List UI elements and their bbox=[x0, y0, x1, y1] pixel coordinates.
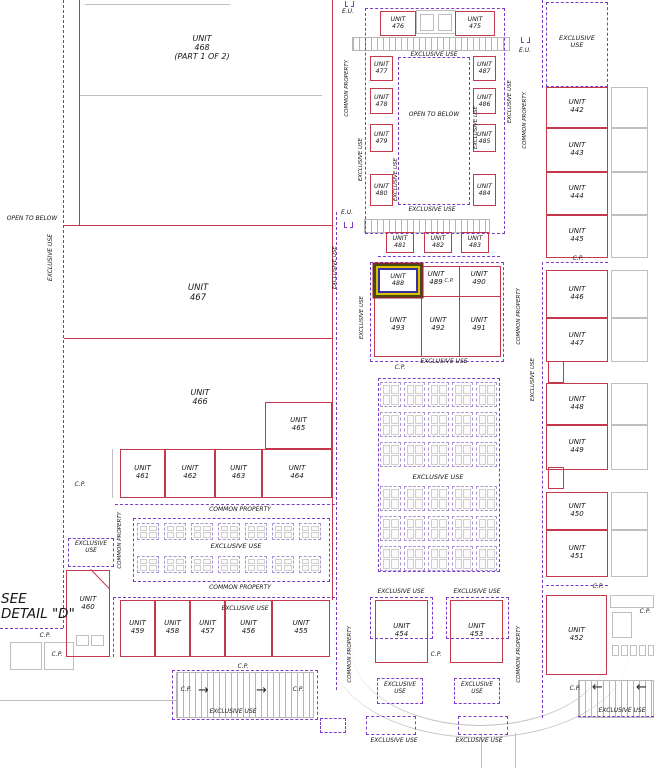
unit-466-label: UNIT 466 bbox=[190, 388, 209, 406]
unit-492-label: UNIT 492 bbox=[430, 317, 447, 333]
wall-segment bbox=[332, 0, 333, 600]
unit-477-label: UNIT 477 bbox=[374, 61, 389, 75]
table-group bbox=[404, 546, 425, 571]
unit-444-label: UNIT 444 bbox=[569, 185, 586, 201]
boundary-rect bbox=[320, 718, 346, 733]
table-group bbox=[164, 556, 186, 573]
table-group bbox=[452, 516, 473, 541]
balcony-or-fixture-outline bbox=[611, 215, 648, 258]
boundary-line bbox=[113, 597, 335, 598]
eu-bracket-icon bbox=[345, 1, 354, 7]
unit-455-label: UNIT 455 bbox=[293, 620, 310, 636]
annotation-label: EXCLUSIVE USE bbox=[377, 589, 424, 596]
annotation-label: EXCLUSIVE USE bbox=[453, 589, 500, 596]
unit-443-label: UNIT 443 bbox=[569, 142, 586, 158]
unit-482-label: UNIT 482 bbox=[430, 235, 445, 249]
table-group bbox=[428, 516, 449, 541]
annotation-label-rotated: EXCLUSIVE USE bbox=[48, 234, 54, 281]
unit-449-label: UNIT 449 bbox=[569, 439, 586, 455]
table-group bbox=[164, 523, 186, 540]
wall-rect bbox=[548, 361, 564, 383]
balcony-or-fixture-outline bbox=[10, 642, 42, 670]
boundary-rect bbox=[458, 716, 508, 735]
annotation-label-rotated: EXCLUSIVE USE bbox=[333, 246, 339, 289]
table-group bbox=[272, 523, 294, 540]
table-group bbox=[476, 546, 497, 571]
annotation-label-rotated: EXCLUSIVE USE bbox=[394, 158, 400, 201]
table-group bbox=[380, 382, 401, 407]
unit-488-label: UNIT 488 bbox=[390, 273, 406, 288]
unit-448-label: UNIT 448 bbox=[569, 396, 586, 412]
table-group bbox=[380, 486, 401, 511]
annotation-label-rotated: EXCLUSIVE USE bbox=[360, 296, 366, 339]
gray-wall-line bbox=[0, 700, 176, 701]
annotation-label: C.P. bbox=[52, 652, 63, 659]
floor-plan: →→←←UNIT 476UNIT 475UNIT 477UNIT 478UNIT… bbox=[0, 0, 654, 768]
balcony-or-fixture-outline bbox=[611, 425, 648, 470]
unit-493-label: UNIT 493 bbox=[390, 317, 407, 333]
unit-461-label: UNIT 461 bbox=[134, 465, 151, 481]
table-group bbox=[404, 486, 425, 511]
balcony-or-fixture-outline bbox=[611, 87, 648, 128]
unit-459-label: UNIT 459 bbox=[129, 620, 146, 636]
gray-wall-line bbox=[79, 95, 322, 96]
annotation-label: C.P. bbox=[293, 687, 304, 694]
boundary-line bbox=[542, 262, 543, 588]
unit-468-label: UNIT 468 (PART 1 OF 2) bbox=[174, 34, 229, 61]
wall-segment bbox=[79, 0, 80, 226]
annotation-label: C.P. bbox=[238, 664, 249, 671]
balcony-or-fixture-outline bbox=[630, 645, 637, 656]
annotation-label: C.P. bbox=[40, 633, 51, 640]
annotation-label: EXCLUSIVE USE bbox=[455, 738, 502, 745]
stair-direction-arrow: ← bbox=[636, 681, 647, 696]
unit-475-label: UNIT 475 bbox=[467, 16, 482, 30]
unit-446-label: UNIT 446 bbox=[569, 286, 586, 302]
boundary-line bbox=[63, 0, 64, 628]
table-group bbox=[191, 556, 213, 573]
unit-447-label: UNIT 447 bbox=[569, 332, 586, 348]
annotation-label: EXCLUSIVE USE bbox=[410, 52, 457, 59]
annotation-label-rotated: EXCLUSIVE USE bbox=[508, 80, 514, 123]
unit-465-label: UNIT 465 bbox=[290, 417, 307, 433]
unit-452-label: UNIT 452 bbox=[568, 627, 585, 643]
table-group bbox=[452, 486, 473, 511]
annotation-label-rotated: EXCLUSIVE USE bbox=[531, 358, 537, 401]
table-group bbox=[428, 486, 449, 511]
annotation-label: C.P. bbox=[75, 482, 86, 489]
annotation-label: EXCLUSIVE USE bbox=[221, 606, 268, 613]
table-group bbox=[245, 556, 267, 573]
boundary-rect bbox=[398, 57, 470, 205]
annotation-label: OPEN TO BELOW bbox=[7, 216, 58, 223]
boundary-line bbox=[113, 597, 114, 657]
annotation-label: OPEN TO BELOW bbox=[409, 112, 460, 119]
unit-442-label: UNIT 442 bbox=[569, 99, 586, 115]
table-group bbox=[452, 442, 473, 467]
table-group bbox=[380, 546, 401, 571]
table-group bbox=[404, 382, 425, 407]
wall-rect bbox=[548, 467, 564, 489]
annotation-label: C.P. bbox=[593, 584, 604, 591]
boundary-line bbox=[542, 0, 543, 88]
unit-489-label: UNIT 489 bbox=[428, 271, 445, 287]
annotation-label: C.P. bbox=[570, 686, 581, 693]
annotation-label: E.U. bbox=[519, 48, 531, 55]
gray-wall-line bbox=[515, 733, 516, 768]
annotation-label-rotated: COMMON PROPERTY bbox=[345, 60, 351, 117]
table-group bbox=[380, 412, 401, 437]
wall-segment bbox=[64, 225, 332, 226]
annotation-label-rotated: COMMON PROPERTY bbox=[118, 512, 124, 569]
unit-453-label: UNIT 453 bbox=[468, 623, 485, 639]
unit-483-label: UNIT 483 bbox=[467, 235, 482, 249]
annotation-label: EXCLUSIVE USE bbox=[384, 682, 416, 695]
table-group bbox=[428, 412, 449, 437]
table-group bbox=[272, 556, 294, 573]
annotation-label: EXCLUSIVE USE bbox=[370, 738, 417, 745]
table-group bbox=[404, 442, 425, 467]
unit-467-label: UNIT 467 bbox=[188, 284, 208, 303]
table-group bbox=[452, 382, 473, 407]
annotation-label: SEE DETAIL "D" bbox=[1, 592, 75, 623]
unit-457-label: UNIT 457 bbox=[199, 620, 216, 636]
unit-479-label: UNIT 479 bbox=[374, 131, 389, 145]
unit-487-label: UNIT 487 bbox=[477, 61, 492, 75]
annotation-label: EXCLUSIVE USE bbox=[209, 709, 256, 716]
annotation-label: E.U. bbox=[341, 210, 353, 217]
annotation-label: C.P. bbox=[181, 687, 192, 694]
unit-484-label: UNIT 484 bbox=[477, 183, 492, 197]
annotation-label: EXCLUSIVE USE bbox=[420, 359, 467, 366]
balcony-or-fixture-outline bbox=[611, 128, 648, 172]
balcony-or-fixture-outline bbox=[610, 595, 654, 608]
unit-491-label: UNIT 491 bbox=[471, 317, 488, 333]
unit-478-label: UNIT 478 bbox=[374, 94, 389, 108]
boundary-line bbox=[578, 716, 654, 717]
table-group bbox=[245, 523, 267, 540]
annotation-label: E.U. bbox=[342, 9, 354, 16]
unit-451-label: UNIT 451 bbox=[569, 545, 586, 561]
annotation-label: EXCLUSIVE USE bbox=[461, 682, 493, 695]
boundary-line bbox=[0, 628, 63, 629]
table-group bbox=[428, 442, 449, 467]
table-group bbox=[299, 556, 321, 573]
balcony-or-fixture-outline bbox=[648, 645, 654, 656]
boundary-line bbox=[542, 590, 543, 718]
annotation-label: C.P. bbox=[431, 652, 442, 659]
balcony-or-fixture-outline bbox=[612, 612, 632, 638]
annotation-label: EXCLUSIVE USE bbox=[412, 474, 463, 481]
unit-486-label: UNIT 486 bbox=[477, 94, 492, 108]
table-group bbox=[428, 382, 449, 407]
unit-463-label: UNIT 463 bbox=[230, 465, 247, 481]
annotation-label: C.P. bbox=[640, 609, 651, 616]
table-group bbox=[218, 556, 240, 573]
annotation-label: C.P. bbox=[573, 256, 584, 263]
annotation-label-rotated: COMMON PROPERTY bbox=[517, 288, 523, 345]
annotation-label: EXCLUSIVE USE bbox=[408, 207, 455, 214]
unit-460-label: UNIT 460 bbox=[80, 596, 97, 612]
boundary-line bbox=[378, 256, 500, 257]
annotation-label: EXCLUSIVE USE bbox=[598, 708, 645, 715]
balcony-or-fixture-outline bbox=[639, 645, 646, 656]
annotation-label-rotated: COMMON PROPERTY bbox=[517, 626, 523, 683]
eu-bracket-icon bbox=[344, 222, 353, 228]
balcony-or-fixture-outline bbox=[611, 383, 648, 425]
unit-456-label: UNIT 456 bbox=[240, 620, 257, 636]
unit-480-label: UNIT 480 bbox=[374, 183, 389, 197]
annotation-label: C.P. bbox=[445, 279, 454, 285]
unit-454-label: UNIT 454 bbox=[393, 623, 410, 639]
table-group bbox=[299, 523, 321, 540]
gray-wall-line bbox=[112, 449, 113, 498]
table-group bbox=[218, 523, 240, 540]
annotation-label: EXCLUSIVE USE bbox=[210, 543, 261, 550]
gray-wall-line bbox=[85, 4, 230, 5]
unit-481-label: UNIT 481 bbox=[392, 235, 407, 249]
balcony-or-fixture-outline bbox=[611, 530, 648, 577]
table-group bbox=[428, 546, 449, 571]
unit-462-label: UNIT 462 bbox=[182, 465, 199, 481]
stair-direction-arrow: ← bbox=[592, 681, 603, 696]
unit-458-label: UNIT 458 bbox=[164, 620, 181, 636]
annotation-label: EXCLUSIVE USE bbox=[559, 35, 595, 50]
table-group bbox=[137, 523, 159, 540]
table-group bbox=[476, 382, 497, 407]
table-group bbox=[476, 412, 497, 437]
table-group bbox=[404, 516, 425, 541]
balcony-or-fixture-outline bbox=[611, 492, 648, 530]
balcony-or-fixture-outline bbox=[611, 318, 648, 362]
annotation-label: COMMON PROPERTY bbox=[209, 507, 271, 514]
annotation-label: COMMON PROPERTY bbox=[209, 585, 271, 592]
eu-bracket-icon bbox=[521, 37, 530, 43]
table-group bbox=[476, 516, 497, 541]
table-group bbox=[476, 486, 497, 511]
unit-490-label: UNIT 490 bbox=[471, 271, 488, 287]
unit-485-label: UNIT 485 bbox=[477, 131, 492, 145]
unit-464-label: UNIT 464 bbox=[289, 465, 306, 481]
table-group bbox=[452, 412, 473, 437]
annotation-label: C.P. bbox=[395, 365, 406, 372]
table-group bbox=[380, 516, 401, 541]
table-group bbox=[452, 546, 473, 571]
table-group bbox=[137, 556, 159, 573]
table-group bbox=[191, 523, 213, 540]
annotation-label-rotated: COMMON PROPERTY bbox=[348, 626, 354, 683]
boundary-rect bbox=[366, 716, 416, 735]
annotation-label-rotated: EXCLUSIVE USE bbox=[359, 138, 365, 181]
annotation-label: EXCLUSIVE USE bbox=[75, 541, 107, 554]
table-group bbox=[476, 442, 497, 467]
table-group bbox=[380, 442, 401, 467]
annotation-label-rotated: COMMON PROPERTY bbox=[523, 92, 529, 149]
table-group bbox=[404, 412, 425, 437]
wall-segment bbox=[64, 338, 332, 339]
balcony-or-fixture-outline bbox=[611, 270, 648, 318]
boundary-line bbox=[115, 504, 335, 505]
balcony-or-fixture-outline bbox=[611, 172, 648, 215]
unit-450-label: UNIT 450 bbox=[569, 503, 586, 519]
unit-445-label: UNIT 445 bbox=[569, 228, 586, 244]
unit-476-label: UNIT 476 bbox=[390, 16, 405, 30]
